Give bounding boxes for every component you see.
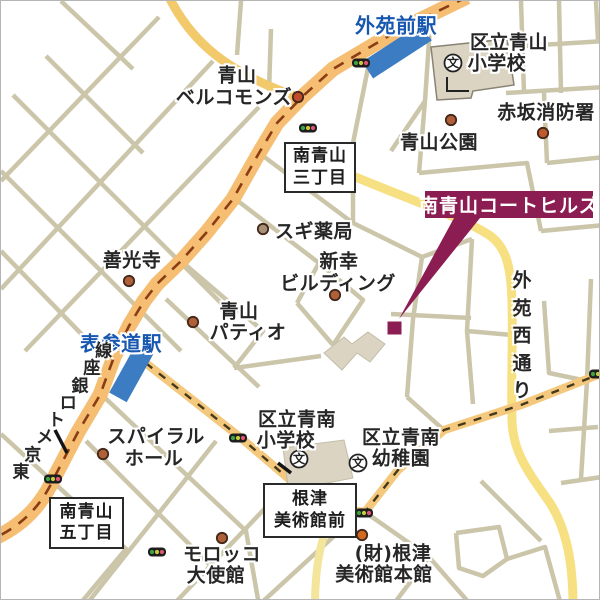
traffic-light xyxy=(352,59,370,68)
street xyxy=(1,251,93,346)
street xyxy=(559,1,561,93)
street xyxy=(596,1,598,41)
street xyxy=(61,1,133,69)
street xyxy=(1,17,159,181)
zenkoji-dot xyxy=(124,276,134,286)
morocco-embassy-dot xyxy=(217,533,227,543)
property-name-banner: 南青山コートヒルズ xyxy=(425,191,593,218)
street xyxy=(103,396,259,600)
spiral-hall-dot xyxy=(98,449,108,459)
traffic-light xyxy=(229,434,247,443)
traffic-light xyxy=(355,509,373,518)
building-block xyxy=(324,332,385,370)
aoyama-elementary-building xyxy=(431,39,514,100)
seinan-kindergarten-icon: 文 xyxy=(350,455,367,472)
patio-dot xyxy=(188,317,198,327)
street xyxy=(521,1,524,93)
seinan-elementary-building xyxy=(283,440,353,494)
svg-text:文: 文 xyxy=(352,455,365,470)
traffic-light xyxy=(589,370,600,379)
street xyxy=(547,157,600,163)
fire-station-dot xyxy=(538,128,548,138)
street xyxy=(549,427,598,431)
street xyxy=(524,41,600,46)
street xyxy=(507,547,561,600)
street xyxy=(166,299,259,387)
traffic-light xyxy=(299,124,317,133)
map-canvas: 文文文 xyxy=(1,1,600,600)
street xyxy=(365,512,471,600)
street xyxy=(297,303,333,345)
yellow-road-south xyxy=(315,509,333,600)
street xyxy=(561,477,600,483)
street xyxy=(481,481,541,541)
seinan-elementary-school-icon: 文 xyxy=(291,451,308,468)
bellcommons-dot xyxy=(293,92,303,102)
street xyxy=(234,356,321,368)
street xyxy=(407,257,422,397)
traffic-light xyxy=(148,548,166,557)
street xyxy=(353,63,369,223)
street xyxy=(467,239,473,404)
street xyxy=(259,153,353,223)
aoyama-elementary-school-icon: 文 xyxy=(445,55,462,72)
street xyxy=(467,331,512,335)
street xyxy=(391,314,471,318)
street xyxy=(319,263,363,345)
minami-aoyama-court-hills-map: 文文文 外苑前駅区立青山小学校青山ベルコモンズ赤坂消防署青山公園スギ薬局新幸ビル… xyxy=(0,0,600,600)
shinko-building-dot xyxy=(330,290,340,300)
street xyxy=(407,397,445,431)
street xyxy=(234,198,319,303)
nezu-museum-dot xyxy=(357,530,367,540)
street xyxy=(259,516,356,600)
street xyxy=(544,301,587,381)
aoyama-park-dot xyxy=(446,115,456,125)
traffic-light xyxy=(44,475,62,484)
miyuki-street-east xyxy=(334,372,600,512)
street xyxy=(46,56,143,153)
street xyxy=(237,1,241,55)
property-marker xyxy=(388,322,402,335)
street xyxy=(393,557,429,600)
svg-text:文: 文 xyxy=(293,451,306,466)
sugi-pharmacy-dot xyxy=(258,224,268,234)
street xyxy=(173,481,291,600)
svg-text:文: 文 xyxy=(447,55,460,70)
street xyxy=(506,87,600,93)
street xyxy=(541,225,600,231)
street xyxy=(456,527,507,576)
